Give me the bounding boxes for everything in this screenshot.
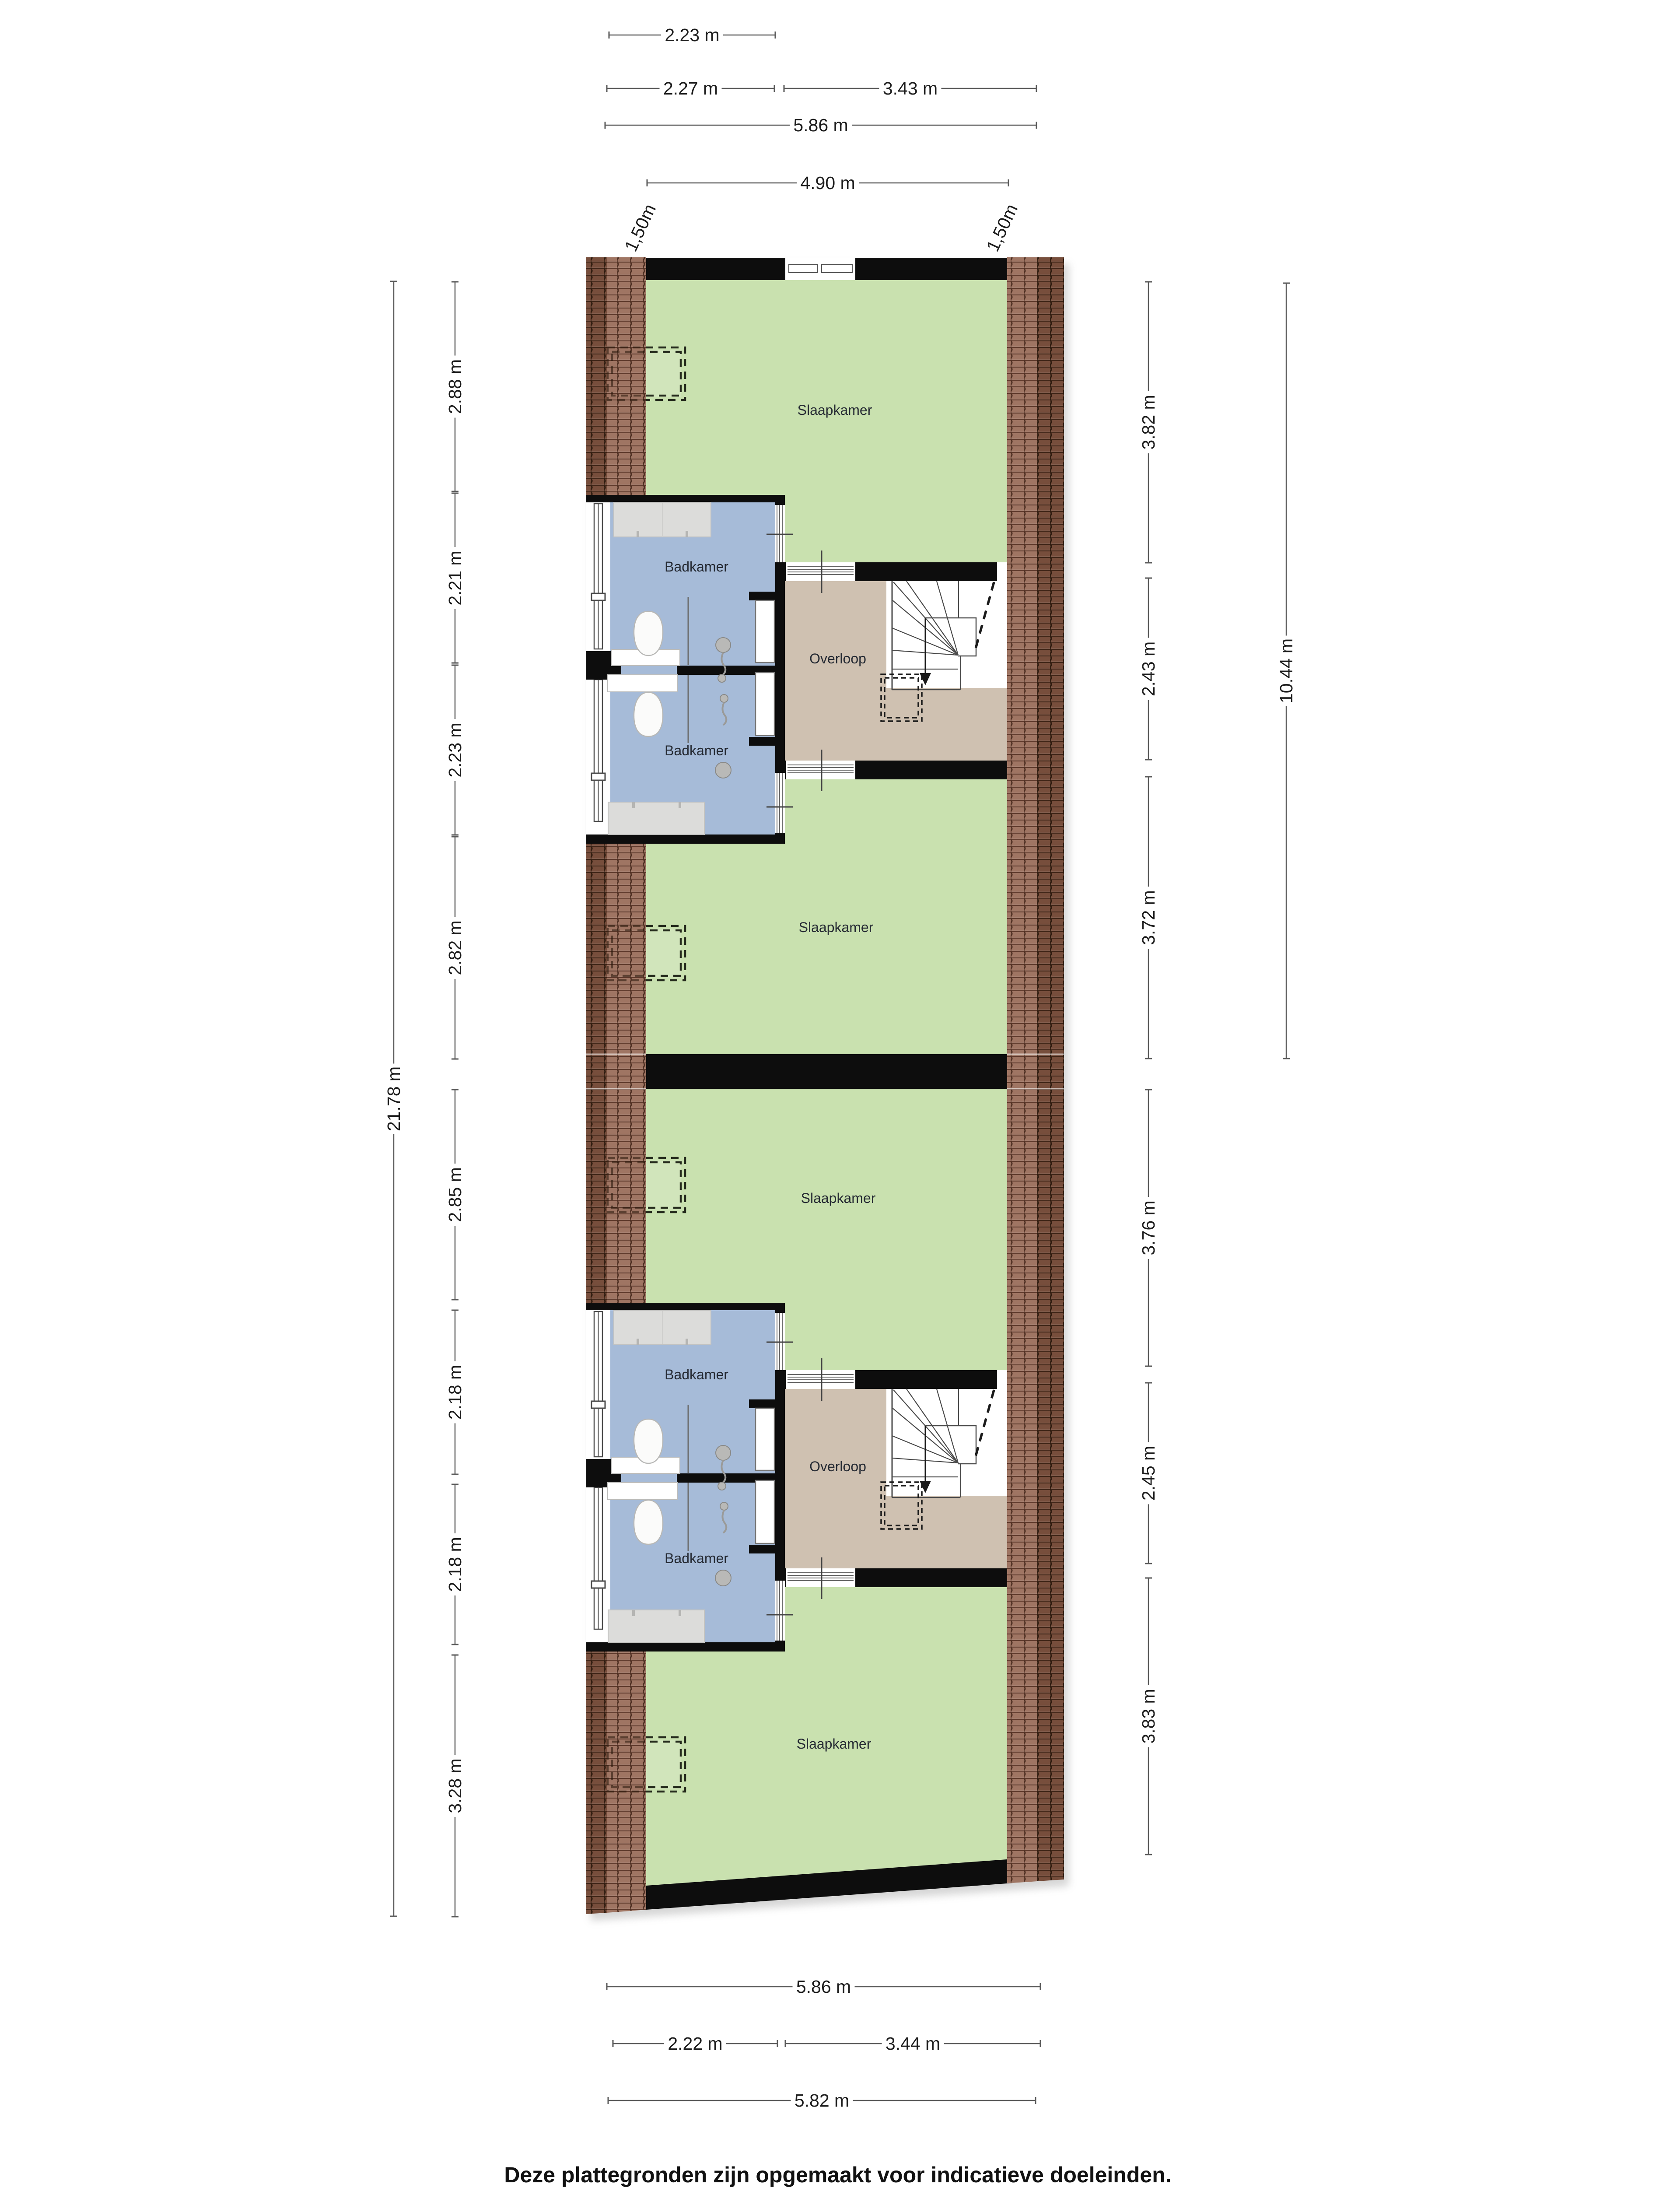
svg-text:2.27 m: 2.27 m bbox=[663, 78, 718, 98]
svg-text:Badkamer: Badkamer bbox=[665, 1367, 728, 1382]
svg-text:3.44 m: 3.44 m bbox=[885, 2034, 940, 2054]
svg-text:2.18 m: 2.18 m bbox=[445, 1537, 465, 1592]
svg-text:2.88 m: 2.88 m bbox=[445, 359, 465, 414]
svg-text:5.82 m: 5.82 m bbox=[794, 2090, 849, 2111]
svg-text:2.43 m: 2.43 m bbox=[1138, 642, 1158, 696]
svg-text:2.22 m: 2.22 m bbox=[668, 2034, 722, 2054]
svg-text:Badkamer: Badkamer bbox=[665, 559, 728, 575]
svg-text:2.85 m: 2.85 m bbox=[445, 1167, 465, 1222]
svg-text:2.23 m: 2.23 m bbox=[665, 25, 719, 45]
svg-text:2.45 m: 2.45 m bbox=[1138, 1446, 1158, 1501]
svg-text:Overloop: Overloop bbox=[809, 651, 866, 666]
svg-text:Overloop: Overloop bbox=[809, 1459, 866, 1474]
svg-text:5.86 m: 5.86 m bbox=[793, 115, 848, 135]
svg-text:3.82 m: 3.82 m bbox=[1138, 395, 1158, 449]
svg-text:3.43 m: 3.43 m bbox=[883, 78, 938, 98]
svg-text:2.18 m: 2.18 m bbox=[445, 1365, 465, 1420]
svg-text:3.76 m: 3.76 m bbox=[1138, 1200, 1158, 1255]
svg-text:Slaapkamer: Slaapkamer bbox=[801, 1190, 876, 1206]
svg-text:3.83 m: 3.83 m bbox=[1138, 1689, 1158, 1743]
svg-text:2.21 m: 2.21 m bbox=[445, 551, 465, 605]
svg-text:Slaapkamer: Slaapkamer bbox=[797, 1736, 871, 1752]
svg-text:Badkamer: Badkamer bbox=[665, 1550, 728, 1566]
svg-text:21.78 m: 21.78 m bbox=[384, 1066, 404, 1131]
svg-text:Badkamer: Badkamer bbox=[665, 743, 728, 758]
svg-text:5.86 m: 5.86 m bbox=[796, 1977, 851, 1997]
svg-text:Slaapkamer: Slaapkamer bbox=[799, 919, 874, 935]
svg-text:3.28 m: 3.28 m bbox=[445, 1758, 465, 1813]
svg-text:4.90 m: 4.90 m bbox=[800, 173, 855, 193]
svg-text:3.72 m: 3.72 m bbox=[1138, 890, 1158, 945]
svg-text:10.44 m: 10.44 m bbox=[1276, 638, 1296, 703]
svg-text:2.82 m: 2.82 m bbox=[445, 920, 465, 975]
svg-text:Slaapkamer: Slaapkamer bbox=[798, 402, 872, 418]
svg-text:Deze plattegronden zijn opgema: Deze plattegronden zijn opgemaakt voor i… bbox=[504, 2163, 1171, 2187]
svg-text:2.23 m: 2.23 m bbox=[445, 722, 465, 777]
